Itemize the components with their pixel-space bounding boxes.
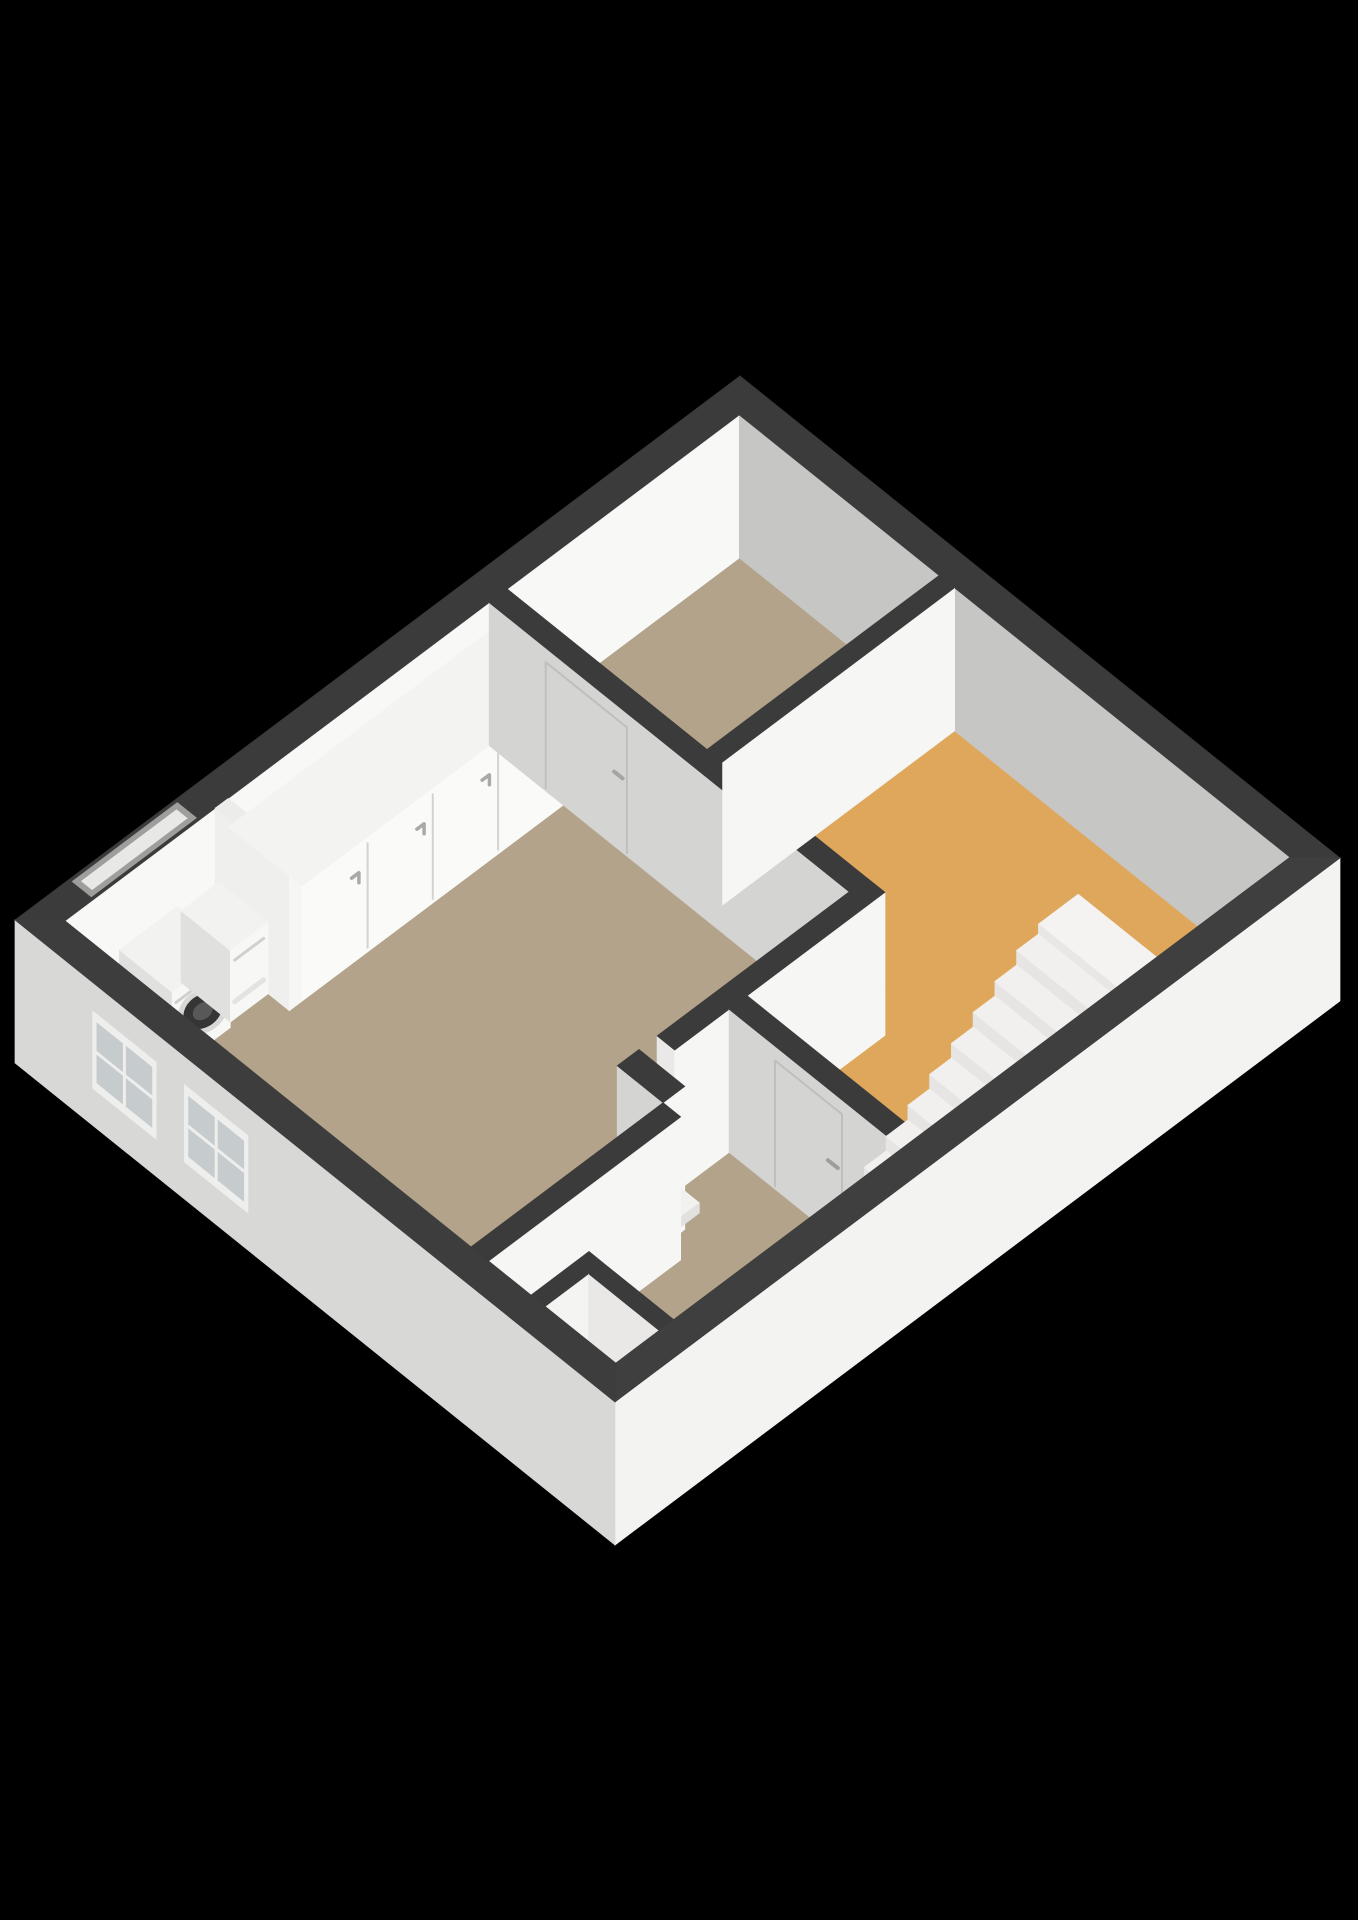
floorplan-3d-stage	[0, 0, 1358, 1920]
floorplan-3d-render	[0, 0, 1358, 1920]
